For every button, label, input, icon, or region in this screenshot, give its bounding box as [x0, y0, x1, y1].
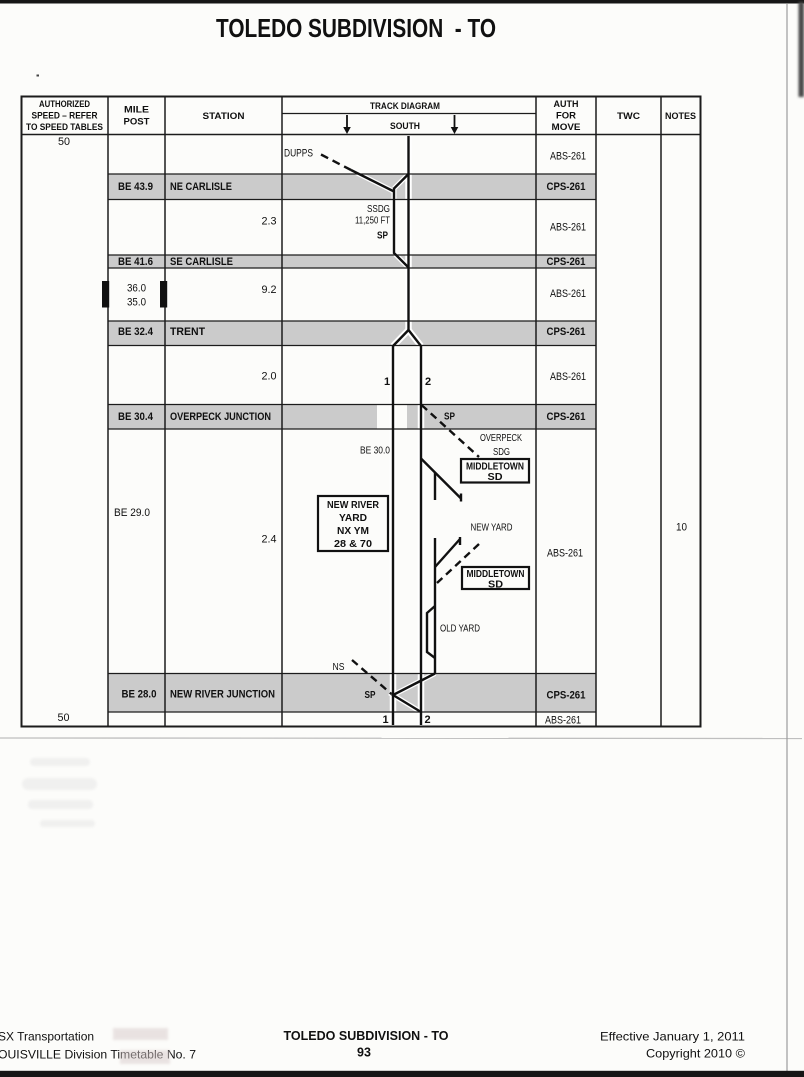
svg-text:AUTHORIZED: AUTHORIZED: [39, 99, 90, 110]
svg-text:POST: POST: [124, 117, 150, 128]
svg-text:FOR: FOR: [556, 111, 576, 122]
svg-text:ABS-261: ABS-261: [550, 222, 586, 234]
svg-text:Copyright 2010 ©: Copyright 2010 ©: [646, 1047, 745, 1061]
svg-text:ABS-261: ABS-261: [545, 715, 581, 727]
svg-text:1: 1: [384, 376, 390, 388]
svg-text:NX YM: NX YM: [337, 526, 369, 537]
svg-text:BE 43.9: BE 43.9: [118, 181, 153, 193]
svg-text:1: 1: [382, 714, 388, 726]
svg-text:BE 41.6: BE 41.6: [118, 256, 153, 268]
svg-text:TRACK DIAGRAM: TRACK DIAGRAM: [370, 101, 440, 112]
svg-text:SD: SD: [488, 580, 503, 591]
svg-text:NOTES: NOTES: [665, 111, 696, 122]
svg-text:NEW YARD: NEW YARD: [471, 523, 513, 534]
svg-text:SDG: SDG: [493, 447, 510, 458]
svg-text:MOVE: MOVE: [552, 122, 581, 133]
svg-text:36.0: 36.0: [127, 283, 146, 295]
svg-text:2: 2: [424, 714, 430, 726]
svg-text:NE CARLISLE: NE CARLISLE: [170, 181, 232, 193]
svg-text:ABS-261: ABS-261: [550, 151, 586, 163]
svg-text:NS: NS: [333, 662, 345, 673]
svg-text:BE 30.0: BE 30.0: [360, 446, 390, 457]
svg-text:2.3: 2.3: [262, 216, 277, 228]
svg-text:OLD YARD: OLD YARD: [440, 624, 480, 635]
svg-text:2.4: 2.4: [262, 534, 277, 546]
svg-text:BE 28.0: BE 28.0: [122, 689, 157, 701]
svg-text:SP: SP: [377, 231, 388, 242]
svg-text:2: 2: [425, 376, 431, 388]
svg-text:9.2: 9.2: [262, 284, 277, 296]
svg-text:TWC: TWC: [617, 111, 640, 122]
svg-text:93: 93: [357, 1046, 371, 1060]
svg-text:ABS-261: ABS-261: [547, 548, 583, 560]
svg-text:CPS-261: CPS-261: [547, 326, 586, 338]
svg-text:SX Transportation: SX Transportation: [0, 1030, 94, 1044]
svg-text:CPS-261: CPS-261: [547, 411, 586, 423]
svg-text:MIDDLETOWN: MIDDLETOWN: [467, 569, 525, 580]
svg-text:28 & 70: 28 & 70: [334, 539, 372, 550]
svg-text:2.0: 2.0: [262, 371, 277, 383]
svg-text:SP: SP: [365, 690, 376, 701]
svg-text:CPS-261: CPS-261: [547, 181, 586, 193]
svg-text:50: 50: [58, 712, 70, 724]
svg-text:YARD: YARD: [339, 513, 367, 524]
svg-text:CPS-261: CPS-261: [547, 690, 586, 702]
svg-text:ABS-261: ABS-261: [550, 288, 586, 300]
svg-text:OVERPECK JUNCTION: OVERPECK JUNCTION: [170, 411, 271, 423]
svg-text:SD: SD: [488, 472, 503, 483]
svg-text:CPS-261: CPS-261: [547, 256, 586, 268]
svg-text:ABS-261: ABS-261: [550, 371, 586, 383]
svg-text:NEW RIVER: NEW RIVER: [327, 500, 380, 511]
svg-text:50: 50: [58, 136, 70, 148]
svg-text:TRENT: TRENT: [170, 326, 205, 338]
svg-text:STATION: STATION: [203, 111, 245, 122]
svg-text:SOUTH: SOUTH: [390, 121, 420, 132]
svg-text:BE 30.4: BE 30.4: [118, 411, 154, 423]
svg-text:Effective January 1, 2011: Effective January 1, 2011: [600, 1030, 745, 1044]
svg-text:MIDDLETOWN: MIDDLETOWN: [466, 462, 524, 473]
svg-text:SPEED – REFER: SPEED – REFER: [32, 111, 98, 122]
svg-text:BE 32.4: BE 32.4: [118, 326, 154, 338]
svg-text:AUTH: AUTH: [554, 99, 579, 110]
svg-text:TOLEDO SUBDIVISION - TO: TOLEDO SUBDIVISION - TO: [284, 1029, 449, 1043]
svg-text:SE CARLISLE: SE CARLISLE: [170, 256, 233, 268]
svg-text:OVERPECK: OVERPECK: [480, 433, 522, 444]
svg-text:DUPPS: DUPPS: [284, 148, 313, 160]
svg-text:TOLEDO SUBDIVISION - TO: TOLEDO SUBDIVISION - TO: [216, 13, 496, 43]
svg-text:MILE: MILE: [124, 105, 149, 116]
svg-text:NEW RIVER JUNCTION: NEW RIVER JUNCTION: [170, 689, 275, 701]
svg-text:BE 29.0: BE 29.0: [114, 507, 150, 519]
svg-text:35.0: 35.0: [127, 297, 146, 309]
svg-text:SP: SP: [444, 412, 455, 423]
svg-text:TO SPEED TABLES: TO SPEED TABLES: [26, 122, 103, 133]
svg-text:10: 10: [676, 522, 687, 534]
svg-text:SSDG: SSDG: [367, 204, 390, 215]
svg-text:11,250 FT: 11,250 FT: [355, 216, 390, 227]
